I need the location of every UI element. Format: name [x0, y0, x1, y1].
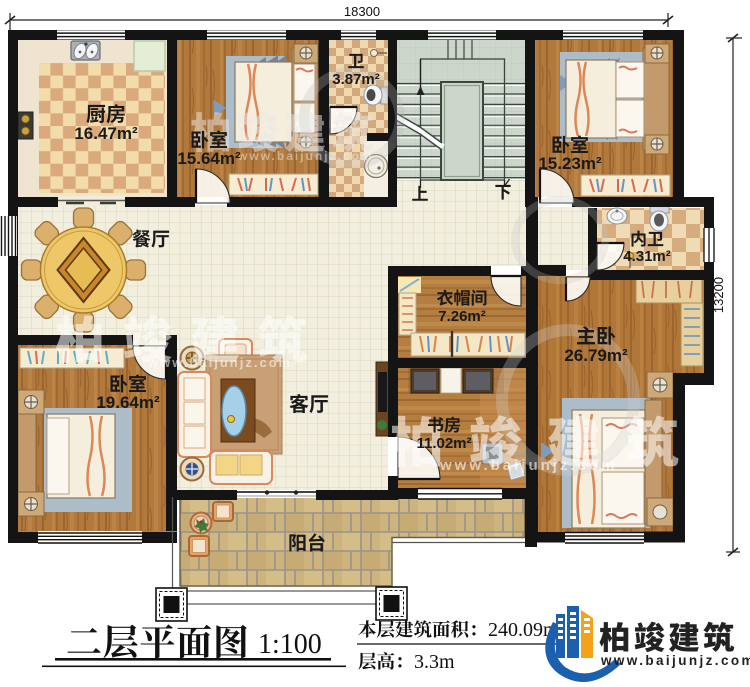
svg-text:7.26m²: 7.26m² — [438, 308, 486, 325]
svg-text:15.23m²: 15.23m² — [538, 154, 602, 173]
svg-text:18300: 18300 — [344, 4, 380, 19]
svg-text:11.02m²: 11.02m² — [416, 435, 471, 452]
svg-text:www.baijunjz.com: www.baijunjz.com — [439, 457, 617, 474]
svg-text:4.31m²: 4.31m² — [623, 248, 671, 265]
svg-text:www.baijunjz.com: www.baijunjz.com — [147, 355, 292, 370]
svg-text:26.79m²: 26.79m² — [564, 346, 628, 365]
svg-text:16.47m²: 16.47m² — [74, 124, 138, 143]
svg-text:3.3m: 3.3m — [414, 651, 455, 673]
svg-text:www.baijunjz.com: www.baijunjz.com — [600, 653, 750, 668]
svg-text:13200: 13200 — [711, 277, 726, 313]
svg-text:1:100: 1:100 — [258, 629, 322, 660]
svg-text:19.64m²: 19.64m² — [96, 393, 160, 412]
svg-text:www.baijunjz.com: www.baijunjz.com — [237, 149, 374, 163]
svg-text:3.87m²: 3.87m² — [332, 71, 380, 88]
svg-text:15.64m²: 15.64m² — [177, 149, 241, 168]
